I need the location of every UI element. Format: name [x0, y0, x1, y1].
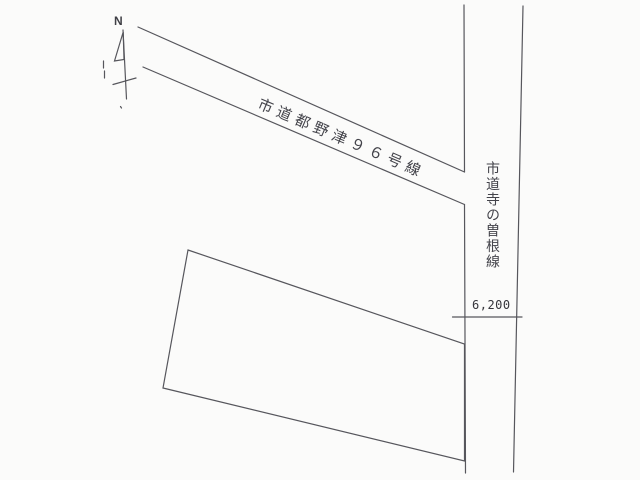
parcel-outline — [163, 250, 465, 461]
vertical-road-name: 市道寺の曽根線 — [483, 161, 503, 270]
north-arrow-icon — [104, 30, 137, 108]
diagonal-road-upper-edge — [138, 27, 465, 172]
north-arrow-crossbar — [113, 78, 136, 85]
vertical-road-east-edge — [514, 6, 524, 472]
north-label: N — [114, 14, 123, 28]
map-linework — [0, 0, 640, 480]
north-arrow-dot — [121, 107, 122, 109]
diagonal-road-lower-edge — [143, 67, 465, 205]
road-width-dimension: 6,200 — [472, 298, 511, 312]
north-arrow-pennant — [115, 32, 125, 61]
vertical-road-west-edge-upper — [464, 5, 465, 172]
sketch-map: N 市道都野津９６号線 市道寺の曽根線 6,200 — [0, 0, 640, 480]
